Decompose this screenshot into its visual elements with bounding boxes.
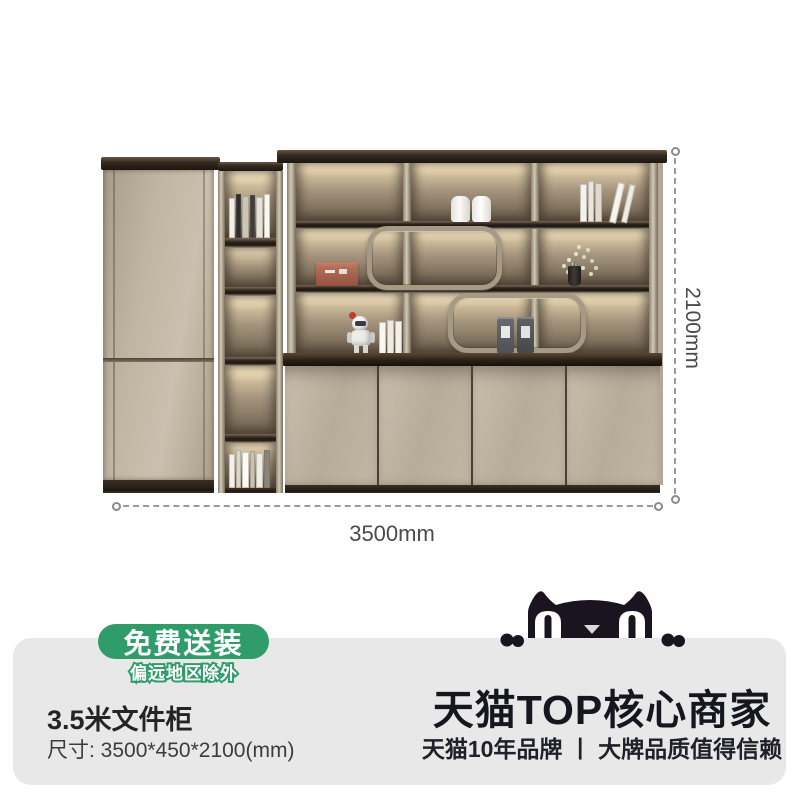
decor-canister (451, 196, 470, 222)
book-spine (242, 196, 249, 238)
cabinet-door (567, 366, 660, 485)
book-spine (229, 454, 235, 488)
tmall-cat-paws-icon (495, 628, 685, 650)
shelf-cubby (539, 229, 649, 285)
book-column-cubby (225, 296, 276, 357)
lower-door-row (285, 366, 660, 485)
book-column-cubby (225, 366, 276, 434)
book-spine (264, 194, 270, 238)
left-cabinet-body (103, 170, 214, 480)
book-spine (588, 181, 594, 222)
decor-robot-arm (370, 332, 375, 343)
book-spine (256, 197, 263, 238)
free-shipping-badge-note: 偏远地区除外 (104, 659, 264, 684)
book-spine (229, 198, 235, 238)
height-dimension-line (674, 158, 676, 494)
decor-metal-frame (367, 226, 502, 290)
cabinet-door (379, 366, 471, 485)
product-title: 3.5米文件柜 (47, 698, 193, 737)
left-cabinet-edge-groove (113, 170, 115, 480)
book-column-left-post (218, 171, 225, 493)
dimension-endpoint-circle (112, 502, 121, 511)
main-unit-left-post (287, 163, 296, 353)
dimension-endpoint-circle (671, 495, 680, 504)
width-dimension-line (123, 505, 653, 507)
decor-robot-body (351, 330, 371, 346)
decor-box-mark (339, 269, 347, 274)
decor-binder (497, 317, 514, 353)
cabinet-door (285, 366, 377, 485)
book-group (580, 181, 634, 222)
book-spine (387, 320, 394, 354)
dimension-endpoint-circle (654, 502, 663, 511)
book-spine (236, 450, 241, 488)
book-column-shelf (225, 434, 276, 443)
book-column-shelf (225, 357, 276, 366)
merchant-headline: 天猫TOP核心商家 (416, 676, 788, 736)
left-cabinet-edge-groove (203, 170, 205, 480)
book-spine (250, 451, 255, 488)
left-cabinet-door-split (103, 358, 214, 362)
book-column-cubby (225, 248, 276, 287)
book-group (229, 450, 273, 488)
height-dimension-label: 2100mm (680, 287, 704, 369)
decor-robot-visor (355, 321, 366, 326)
free-shipping-badge-label: 免费送装 (123, 622, 243, 662)
cabinet-door (473, 366, 565, 485)
book-spine (256, 453, 263, 488)
width-dimension-label: 3500mm (349, 521, 435, 547)
product-banner: 2100mm 3500mm 免费送装 偏远地区除外 3.5米文件柜 尺寸: 35… (0, 0, 800, 800)
book-group (229, 194, 273, 238)
book-column-base (225, 488, 276, 493)
book-spine (395, 321, 402, 354)
decor-binder-label (521, 326, 530, 338)
product-size: 尺寸: 3500*450*2100(mm) (47, 734, 294, 764)
book-column-right-post (276, 171, 283, 493)
book-spine (236, 194, 241, 238)
shelf-cubby (411, 163, 531, 221)
book-group (379, 320, 404, 354)
decor-brick-box (316, 262, 358, 286)
decor-plant-vase (568, 266, 581, 286)
book-spine (595, 183, 602, 222)
decor-robot-arm (347, 332, 352, 343)
left-cabinet-base (103, 480, 214, 493)
decor-canister (472, 196, 491, 222)
main-unit-top-cap (277, 150, 667, 163)
decor-plant-blossoms (574, 252, 578, 256)
main-unit-right-post (649, 163, 658, 353)
main-unit-counter (283, 353, 662, 366)
decor-binder (517, 317, 534, 353)
left-cabinet-top-cap (101, 157, 220, 170)
merchant-subline: 天猫10年品牌 丨 大牌品质值得信赖 (416, 730, 788, 764)
decor-binder-label (501, 326, 510, 338)
shelf-cubby (296, 163, 403, 221)
book-column-top-cap (218, 162, 283, 171)
main-unit-base (285, 485, 660, 493)
book-spine (379, 322, 386, 354)
book-column-shelf (225, 238, 276, 248)
book-spine (580, 184, 587, 222)
book-spine (242, 452, 249, 488)
free-shipping-badge: 免费送装 (98, 624, 269, 659)
book-spine (250, 195, 255, 238)
book-spine (264, 450, 270, 488)
dimension-endpoint-circle (671, 147, 680, 156)
decor-box-mark (325, 270, 335, 273)
book-column-shelf (225, 287, 276, 296)
decor-robot-toy (346, 312, 380, 354)
